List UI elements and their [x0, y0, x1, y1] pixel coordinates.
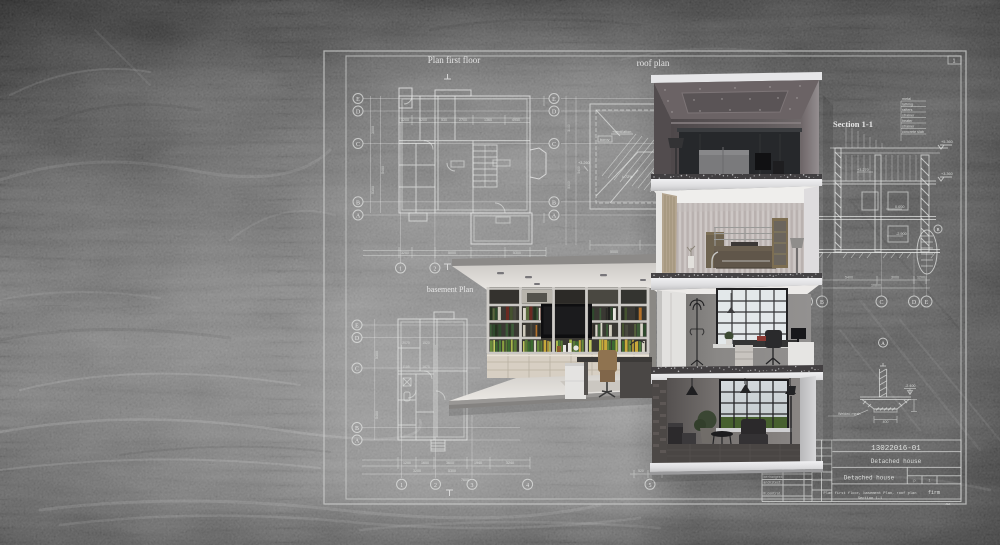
- svg-text:7600: 7600: [461, 478, 469, 482]
- svg-text:5400: 5400: [845, 276, 853, 280]
- svg-text:5000: 5000: [448, 251, 456, 255]
- svg-text:1200: 1200: [403, 461, 411, 465]
- svg-text:A: A: [355, 439, 360, 445]
- svg-text:5300: 5300: [567, 181, 571, 189]
- svg-text:1: 1: [400, 483, 403, 489]
- svg-text:D: D: [355, 336, 360, 342]
- svg-text:Welded mesh: Welded mesh: [838, 412, 860, 416]
- svg-text:C: C: [552, 142, 556, 148]
- svg-text:1675: 1675: [422, 365, 430, 369]
- svg-text:Section 1-1: Section 1-1: [858, 496, 883, 501]
- svg-text:2070: 2070: [402, 341, 410, 345]
- svg-text:Plan first floor, basement Pla: Plan first floor, basement Plan, roof pl…: [824, 491, 917, 496]
- svg-text:400: 400: [883, 420, 889, 424]
- svg-text:13022016-01: 13022016-01: [871, 445, 921, 453]
- svg-text:1940: 1940: [474, 461, 482, 465]
- svg-text:1105: 1105: [402, 365, 409, 369]
- svg-text:C: C: [355, 367, 359, 373]
- svg-text:3000: 3000: [371, 126, 375, 134]
- svg-text:E: E: [552, 97, 556, 103]
- svg-text:+5.360: +5.360: [941, 140, 953, 144]
- svg-text:C: C: [879, 300, 883, 306]
- svg-text:5200: 5200: [419, 118, 427, 122]
- svg-text:3200: 3200: [413, 469, 421, 473]
- svg-text:metal: metal: [902, 97, 911, 101]
- svg-text:Plan first floor: Plan first floor: [428, 55, 481, 65]
- svg-text:concrete slab: concrete slab: [902, 130, 924, 134]
- svg-text:3240: 3240: [506, 461, 514, 465]
- svg-text:5400: 5400: [381, 166, 385, 174]
- svg-text:3000: 3000: [891, 276, 899, 280]
- svg-text:+3.260: +3.260: [578, 161, 590, 165]
- svg-text:roof plan: roof plan: [637, 58, 670, 68]
- svg-text:firm: firm: [928, 490, 940, 496]
- svg-text:D: D: [552, 110, 557, 116]
- svg-text:lathing: lathing: [902, 103, 913, 107]
- svg-text:5400: 5400: [577, 166, 581, 174]
- svg-text:+ventilation: +ventilation: [612, 130, 631, 134]
- svg-text:-2.900: -2.900: [896, 232, 907, 236]
- svg-text:B: B: [936, 227, 939, 232]
- svg-text:A2: A2: [946, 503, 951, 507]
- svg-text:strainer: strainer: [902, 125, 915, 129]
- svg-text:3200: 3200: [401, 118, 409, 122]
- svg-text:1: 1: [399, 267, 402, 273]
- svg-text:Detached house: Detached house: [871, 458, 922, 465]
- svg-text:rafters: rafters: [902, 108, 913, 112]
- svg-text:A: A: [881, 342, 885, 347]
- svg-text:2: 2: [433, 267, 436, 273]
- svg-text:5000: 5000: [610, 250, 618, 254]
- svg-text:heater: heater: [902, 119, 913, 123]
- svg-text:10800: 10800: [871, 284, 881, 288]
- svg-text:N.control: N.control: [764, 492, 781, 496]
- svg-text:D: D: [912, 300, 917, 306]
- svg-text:Section 1-1: Section 1-1: [833, 119, 873, 129]
- svg-text:5300: 5300: [448, 469, 456, 473]
- svg-text:1: 1: [953, 59, 956, 65]
- svg-text:5400: 5400: [375, 411, 379, 419]
- svg-text:D: D: [356, 110, 361, 116]
- svg-text:+3.360: +3.360: [941, 172, 953, 176]
- svg-text:4: 4: [526, 483, 529, 489]
- svg-text:borov: borov: [600, 138, 610, 142]
- svg-text:architect: architect: [764, 481, 781, 485]
- svg-text:E: E: [356, 97, 360, 103]
- svg-text:basement Plan: basement Plan: [427, 285, 473, 294]
- svg-text:3: 3: [471, 483, 474, 489]
- svg-text:2: 2: [434, 483, 437, 489]
- svg-text:4950: 4950: [512, 118, 520, 122]
- svg-text:5: 5: [649, 483, 652, 489]
- svg-text:+3.270: +3.270: [857, 168, 869, 172]
- svg-text:strainer: strainer: [902, 114, 915, 118]
- svg-text:1520: 1520: [422, 341, 430, 345]
- svg-text:E: E: [355, 324, 359, 330]
- svg-text:i=72%: i=72%: [622, 175, 633, 179]
- svg-text:1200: 1200: [917, 276, 925, 280]
- svg-text:1360: 1360: [484, 118, 492, 122]
- svg-text:B: B: [356, 200, 360, 206]
- svg-text:520: 520: [638, 469, 644, 473]
- svg-text:5300: 5300: [375, 351, 379, 359]
- svg-text:5300: 5300: [371, 186, 375, 194]
- svg-text:B: B: [355, 426, 359, 432]
- svg-text:0.000: 0.000: [895, 205, 905, 209]
- svg-text:A: A: [356, 214, 361, 220]
- svg-text:E: E: [925, 300, 929, 306]
- svg-text:3000: 3000: [567, 124, 571, 132]
- svg-text:1600: 1600: [421, 461, 429, 465]
- svg-text:2700: 2700: [459, 118, 467, 122]
- svg-text:C: C: [356, 142, 360, 148]
- svg-text:5300: 5300: [513, 251, 521, 255]
- svg-text:-2.400: -2.400: [905, 384, 915, 388]
- svg-text:B: B: [552, 200, 556, 206]
- svg-text:530: 530: [441, 118, 447, 122]
- svg-text:Detached house: Detached house: [844, 475, 895, 482]
- svg-text:A: A: [552, 214, 557, 220]
- svg-text:3600: 3600: [446, 461, 454, 465]
- svg-text:3200: 3200: [401, 251, 409, 255]
